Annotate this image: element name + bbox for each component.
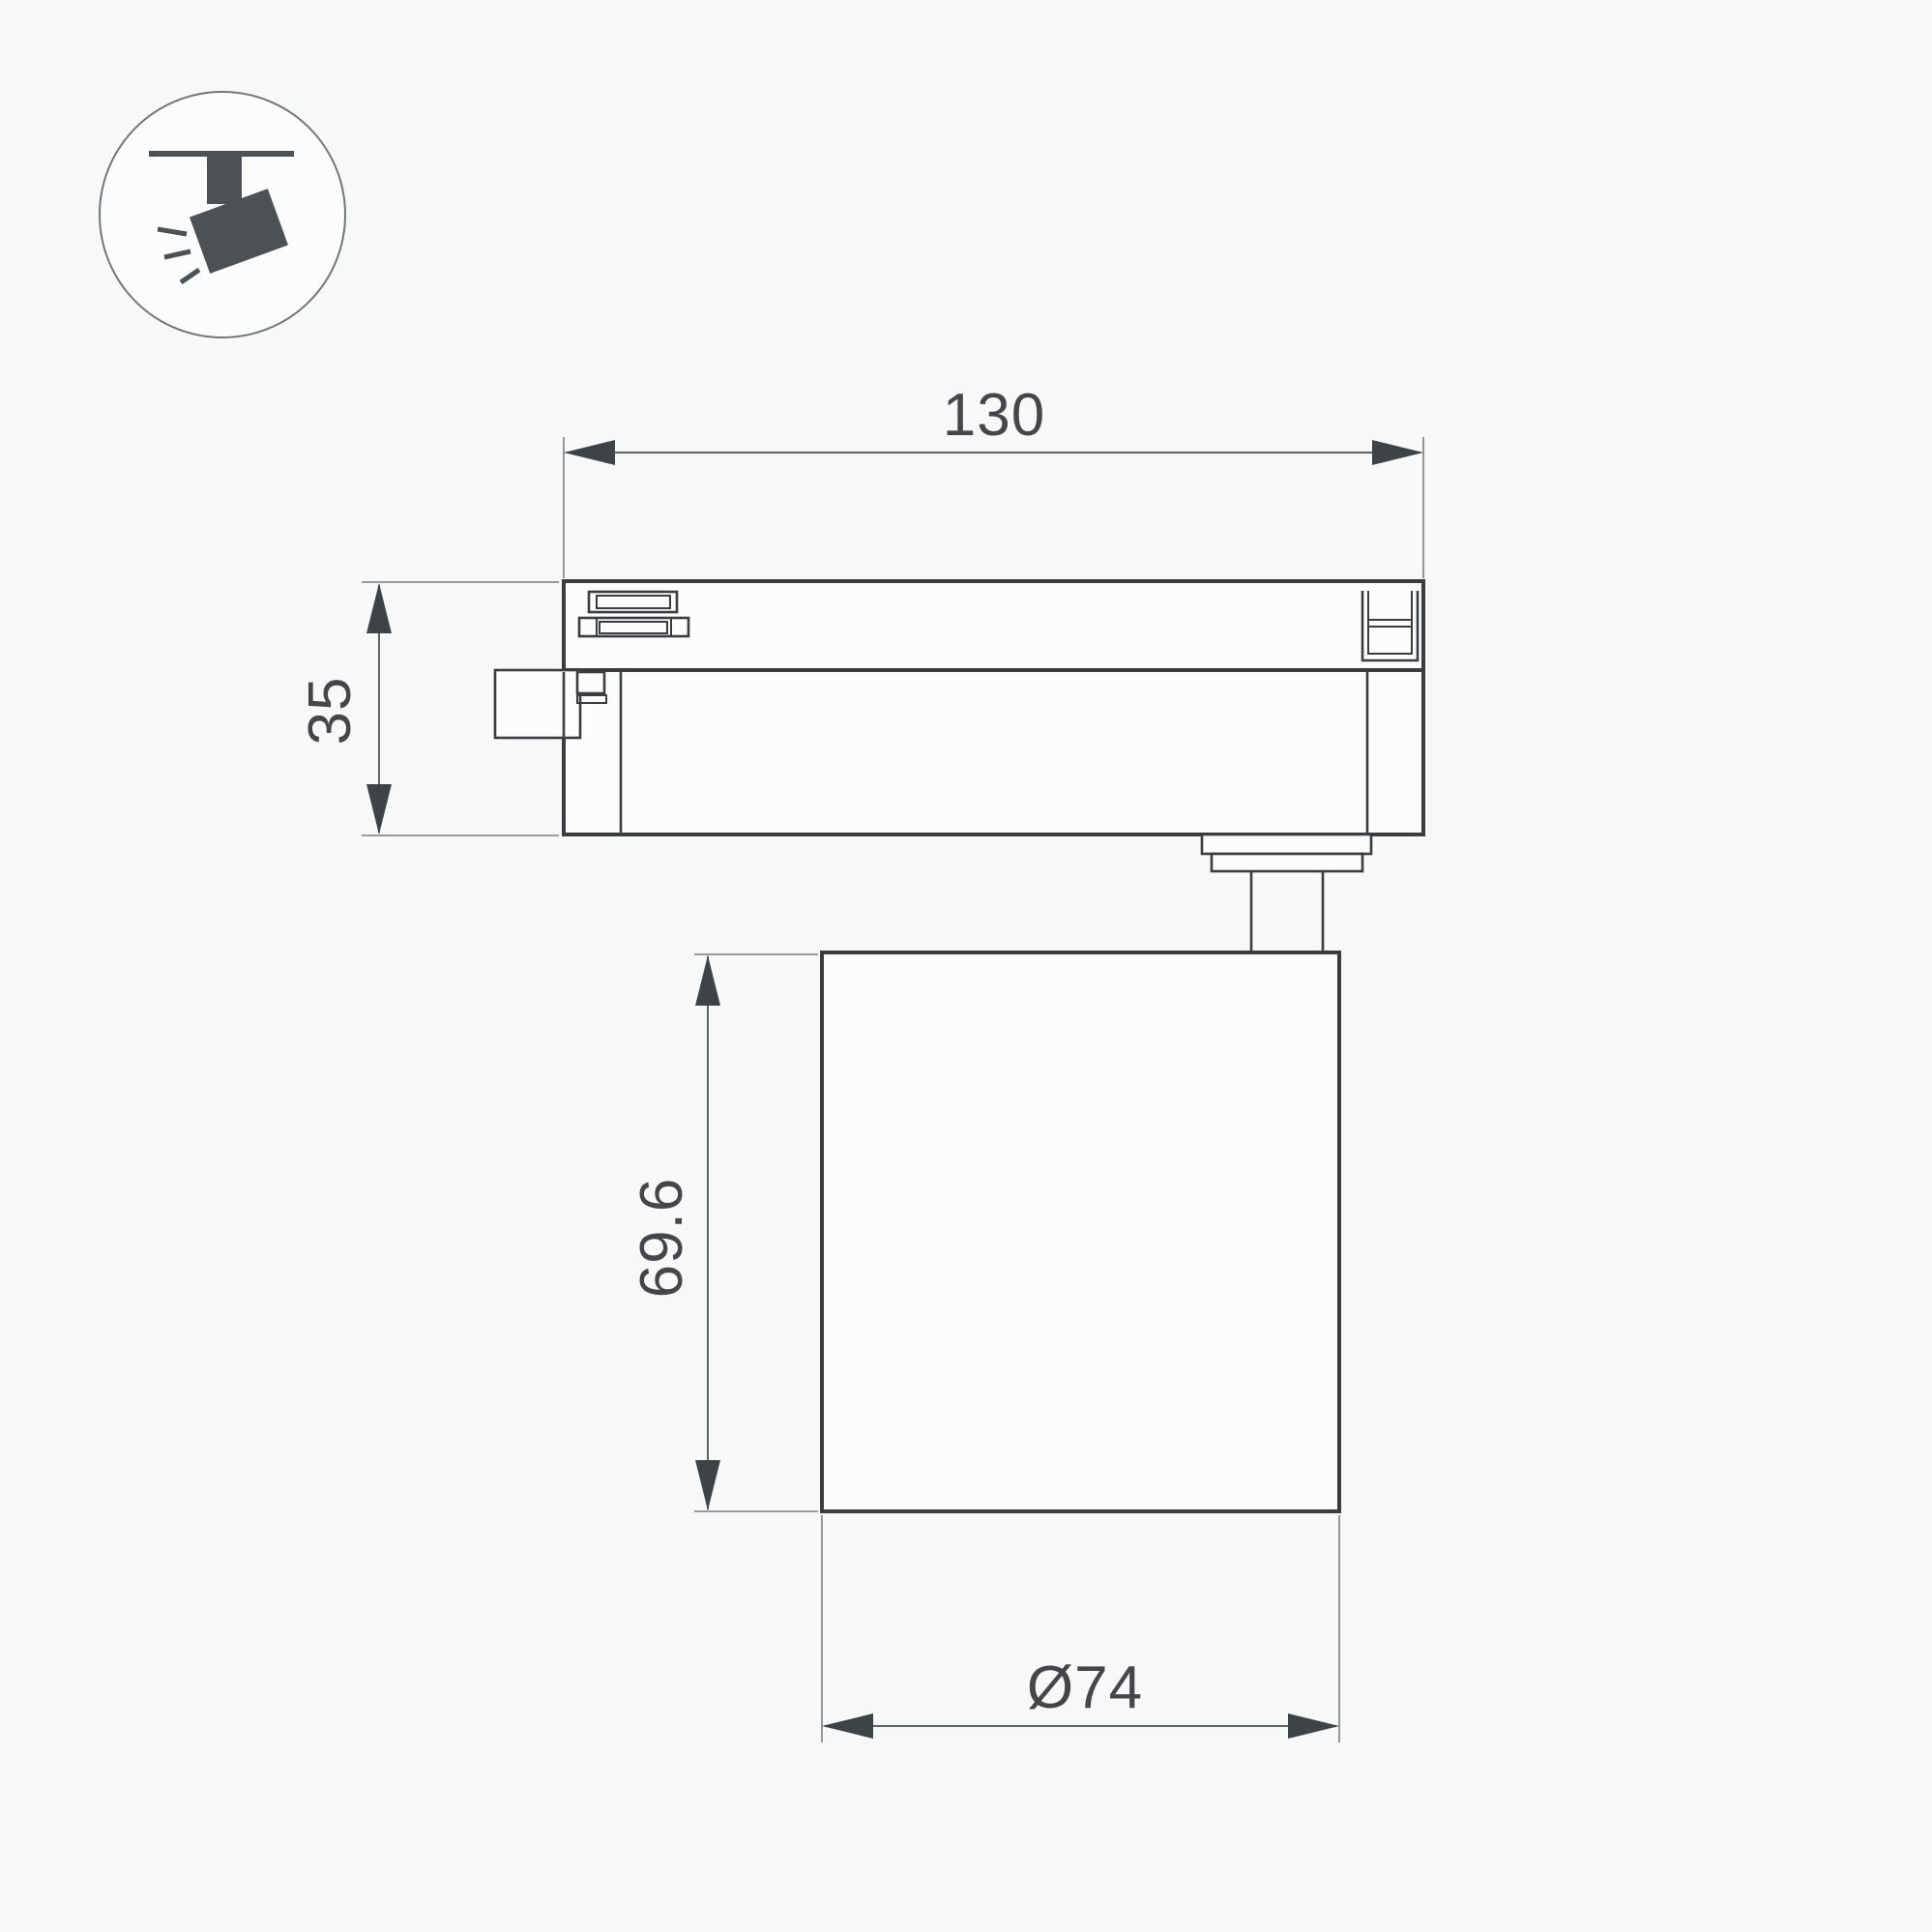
swivel-flange <box>1202 834 1371 871</box>
icon-stem <box>207 154 242 204</box>
track-adapter-outline <box>495 581 1423 952</box>
dimension-69-6: 69.6 <box>629 954 818 1511</box>
arrowhead-left <box>564 440 615 465</box>
arrowhead-bottom <box>366 784 392 834</box>
arrowhead-top <box>366 583 392 633</box>
swivel-stem <box>1251 871 1323 952</box>
mounting-clip-b <box>579 618 688 636</box>
arrowhead-right <box>1288 1713 1339 1739</box>
arrowhead-top <box>695 955 720 1006</box>
arrowhead-right <box>1372 440 1423 465</box>
drawing-page: 130 35 69.6 Ø74 <box>0 0 1932 1932</box>
mounting-clip-a <box>589 592 677 612</box>
dimension-label: Ø74 <box>1027 1654 1143 1721</box>
arrowhead-left <box>822 1713 873 1739</box>
dimension-74: Ø74 <box>822 1515 1339 1742</box>
dimension-label: 35 <box>297 677 364 746</box>
technical-drawing: 130 35 69.6 Ø74 <box>0 0 1932 1932</box>
release-lever <box>495 670 580 738</box>
adapter-body <box>564 581 1423 834</box>
dimension-130: 130 <box>564 382 1423 578</box>
dimension-label: 69.6 <box>629 1178 695 1299</box>
arrowhead-bottom <box>695 1460 720 1510</box>
dimension-label: 130 <box>943 382 1045 449</box>
track-light-icon <box>100 92 345 337</box>
lamp-cylinder <box>822 952 1339 1511</box>
